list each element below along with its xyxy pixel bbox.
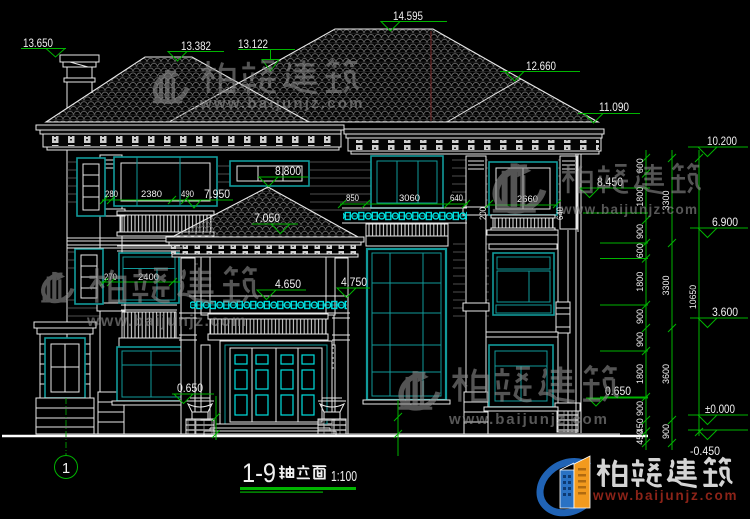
svg-text:900: 900 — [635, 224, 645, 239]
svg-text:450: 450 — [635, 430, 645, 445]
svg-text:900: 900 — [635, 309, 645, 324]
svg-text:-0.450: -0.450 — [690, 446, 720, 458]
svg-text:0.650: 0.650 — [177, 383, 203, 395]
svg-text:10650: 10650 — [688, 285, 698, 309]
svg-text:www.baijunjz.com: www.baijunjz.com — [592, 488, 738, 503]
svg-text:6.900: 6.900 — [712, 217, 738, 229]
svg-text:www.baijunjz.com: www.baijunjz.com — [560, 202, 698, 217]
svg-text:1800: 1800 — [635, 364, 645, 384]
svg-text:3300: 3300 — [661, 275, 671, 295]
svg-text:3.600: 3.600 — [712, 307, 738, 319]
svg-text:640: 640 — [450, 193, 463, 203]
svg-text:10.200: 10.200 — [707, 136, 737, 148]
svg-text:www.baijunjz.com: www.baijunjz.com — [448, 411, 609, 428]
svg-text:900: 900 — [661, 424, 671, 439]
svg-text:900: 900 — [635, 401, 645, 416]
svg-text:850: 850 — [346, 193, 359, 203]
svg-text:7.050: 7.050 — [254, 213, 280, 225]
svg-text:3600: 3600 — [661, 364, 671, 384]
svg-text:1: 1 — [62, 460, 70, 477]
svg-text:4.750: 4.750 — [341, 277, 367, 289]
svg-text:4.650: 4.650 — [275, 279, 301, 291]
svg-text:900: 900 — [635, 332, 645, 347]
svg-text:1:100: 1:100 — [331, 469, 357, 485]
svg-text:11.090: 11.090 — [599, 102, 629, 114]
svg-text:±0.000: ±0.000 — [705, 404, 735, 416]
svg-text:7.950: 7.950 — [204, 189, 230, 201]
svg-text:8.800: 8.800 — [275, 166, 301, 178]
svg-text:www.baijunjz.com: www.baijunjz.com — [199, 95, 365, 112]
svg-text:2380: 2380 — [141, 189, 162, 199]
svg-text:200: 200 — [478, 207, 488, 220]
svg-text:1800: 1800 — [635, 272, 645, 292]
svg-text:www.baijunjz.com: www.baijunjz.com — [86, 313, 248, 330]
svg-text:3060: 3060 — [399, 193, 420, 203]
svg-text:1-9: 1-9 — [242, 458, 276, 488]
svg-text:600: 600 — [635, 243, 645, 258]
